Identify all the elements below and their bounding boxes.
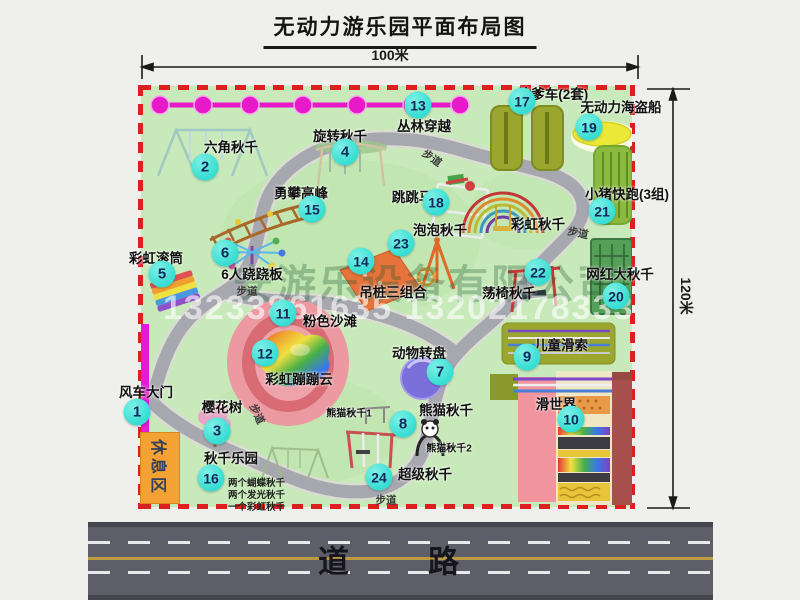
poi-number-bubble-1: 1	[124, 399, 151, 426]
poi-label-23: 泡泡秋千	[413, 219, 467, 239]
poi-label-6: 6人跷跷板	[221, 263, 283, 283]
poi-number-bubble-22: 22	[525, 259, 552, 286]
dimension-height-line	[647, 89, 690, 508]
poi-label-14: 吊桩三组合	[359, 281, 427, 301]
poi-label-13: 丛林穿越	[397, 115, 451, 135]
panda-swing-2-label: 熊猫秋千2	[426, 440, 472, 455]
poi-number-bubble-20: 20	[603, 283, 630, 310]
poi-number-bubble-23: 23	[388, 230, 415, 257]
poi-number-bubble-3: 3	[204, 418, 231, 445]
poi-number-bubble-17: 17	[509, 88, 536, 115]
poi-number-bubble-13: 13	[405, 92, 432, 119]
poi-label-11: 粉色沙滩	[303, 310, 357, 330]
poi-number-bubble-11: 11	[270, 300, 297, 327]
walkway-label: 步道	[376, 493, 397, 508]
poi-label-20: 网红大秋千	[586, 263, 654, 283]
poi-label-2: 六角秋千	[204, 136, 258, 156]
poi-number-bubble-7: 7	[427, 359, 454, 386]
poi-number-bubble-9: 9	[514, 344, 541, 371]
poi-number-bubble-2: 2	[192, 154, 219, 181]
poi-number-bubble-6: 6	[212, 240, 239, 267]
poi-number-bubble-8: 8	[390, 411, 417, 438]
rest-area-label: 休息区	[148, 439, 172, 496]
poi-number-bubble-4: 4	[332, 139, 359, 166]
poi-label-1: 风车大门	[119, 381, 173, 401]
poi-number-bubble-15: 15	[299, 196, 326, 223]
poi-number-bubble-24: 24	[366, 464, 393, 491]
poi-label-24: 超级秋千	[398, 463, 452, 483]
walkway-label: 步道	[237, 284, 258, 299]
panda-swing-1-label: 熊猫秋千1	[326, 405, 372, 420]
poi-number-bubble-21: 21	[589, 198, 616, 225]
poi-number-bubble-18: 18	[423, 189, 450, 216]
poi-number-bubble-14: 14	[348, 248, 375, 275]
playground-map-page: 无动力游乐园平面布局图 100米 120米	[0, 0, 800, 600]
poi-label-22: 荡椅秋千	[482, 282, 536, 302]
dimension-width-line	[142, 55, 638, 79]
poi-number-bubble-5: 5	[149, 261, 176, 288]
poi-label-9: 儿童滑索	[534, 334, 588, 354]
poi-number-bubble-16: 16	[198, 465, 225, 492]
poi-number-bubble-12: 12	[252, 340, 279, 367]
swing-park-note-3: 一个彩虹秋千	[228, 499, 285, 513]
poi-label-3: 樱花树	[202, 396, 243, 416]
poi-label-12: 彩虹蹦蹦云	[265, 368, 333, 388]
rainbow-swing-label: 彩虹秋千	[511, 213, 565, 233]
slide-world-icon	[490, 371, 638, 505]
poi-number-bubble-10: 10	[558, 406, 585, 433]
poi-number-bubble-19: 19	[576, 114, 603, 141]
poi-label-19: 无动力海盗船	[581, 96, 662, 116]
rest-area-box: 休息区	[140, 432, 180, 504]
poi-label-8: 熊猫秋千	[419, 399, 473, 419]
